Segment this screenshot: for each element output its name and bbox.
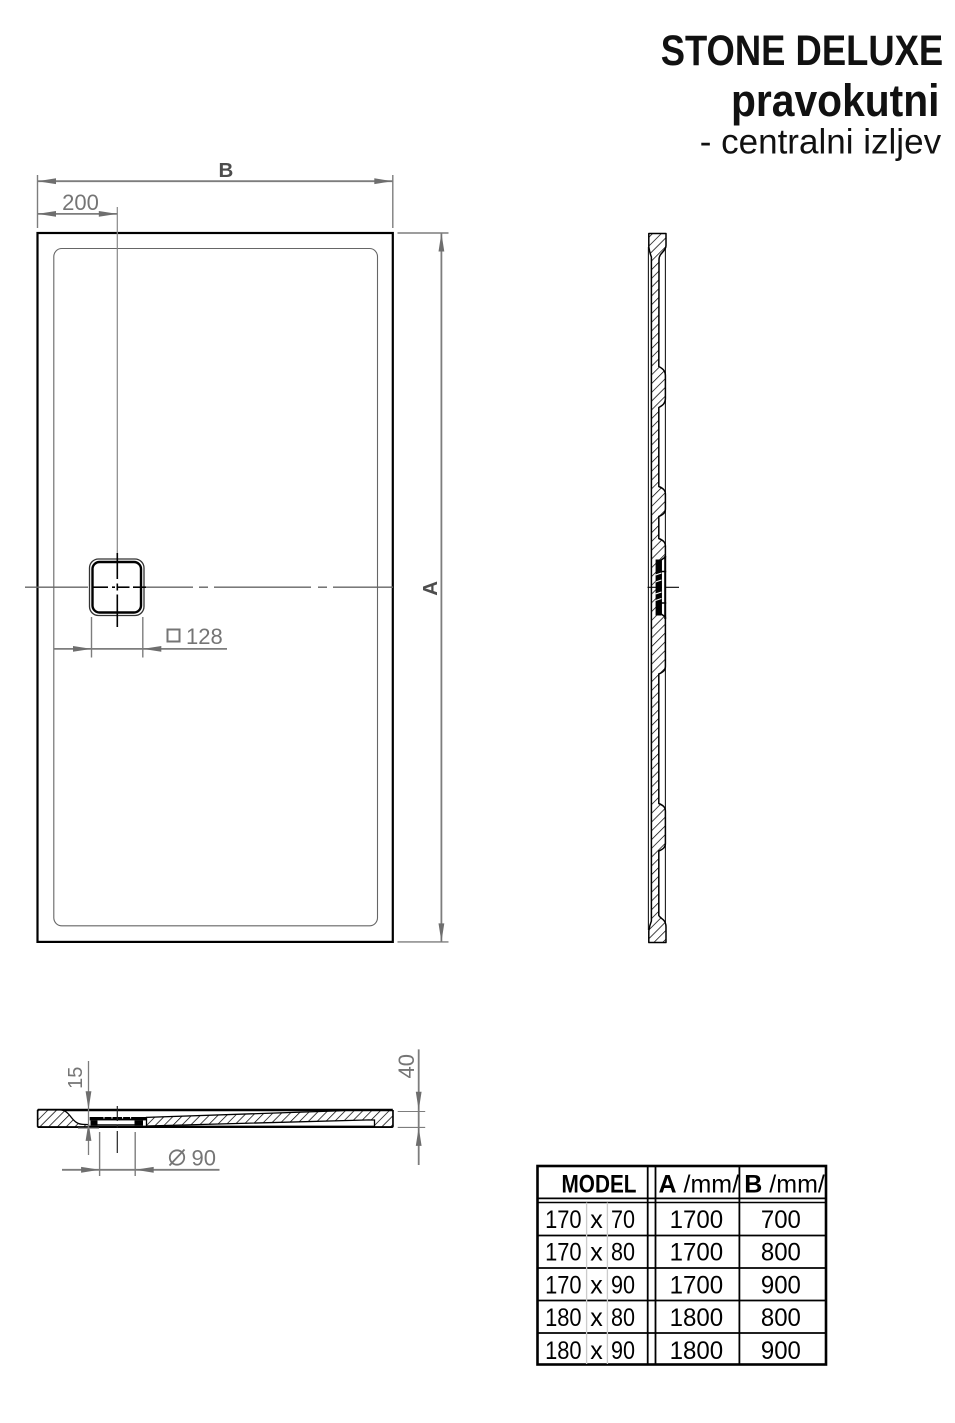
svg-text:80: 80 (611, 1304, 635, 1332)
svg-text:B: B (218, 159, 233, 182)
svg-text:128: 128 (186, 624, 223, 649)
svg-text:1700: 1700 (670, 1271, 724, 1299)
svg-text:200: 200 (62, 190, 99, 215)
svg-text:15: 15 (65, 1067, 87, 1089)
svg-text:pravokutni: pravokutni (731, 75, 940, 126)
svg-text:900: 900 (761, 1271, 801, 1299)
svg-text:1700: 1700 (670, 1206, 724, 1234)
svg-text:170: 170 (545, 1206, 582, 1234)
svg-text:1700: 1700 (670, 1239, 724, 1267)
svg-text:40: 40 (394, 1054, 419, 1078)
svg-text:700: 700 (761, 1206, 801, 1234)
svg-text:A /mm/: A /mm/ (659, 1171, 740, 1199)
svg-text:- centralni izljev: - centralni izljev (700, 121, 942, 161)
svg-text:A: A (419, 581, 442, 596)
svg-text:180: 180 (545, 1337, 582, 1365)
svg-text:90: 90 (611, 1271, 635, 1299)
svg-text:70: 70 (611, 1206, 635, 1234)
svg-text:x: x (590, 1271, 603, 1299)
svg-text:x: x (590, 1337, 603, 1365)
svg-text:x: x (590, 1239, 603, 1267)
svg-text:STONE DELUXE: STONE DELUXE (661, 28, 944, 75)
svg-text:1800: 1800 (670, 1304, 724, 1332)
svg-text:x: x (590, 1304, 603, 1332)
svg-text:800: 800 (761, 1304, 801, 1332)
svg-text:900: 900 (761, 1337, 801, 1365)
svg-text:800: 800 (761, 1239, 801, 1267)
svg-text:MODEL: MODEL (562, 1171, 637, 1199)
svg-text:170: 170 (545, 1239, 582, 1267)
svg-text:90: 90 (611, 1337, 635, 1365)
svg-text:x: x (590, 1206, 603, 1234)
svg-text:B /mm/: B /mm/ (744, 1171, 825, 1199)
svg-text:170: 170 (545, 1271, 582, 1299)
svg-text:90: 90 (192, 1146, 216, 1171)
svg-text:180: 180 (545, 1304, 582, 1332)
svg-text:80: 80 (611, 1239, 635, 1267)
svg-text:1800: 1800 (670, 1337, 724, 1365)
